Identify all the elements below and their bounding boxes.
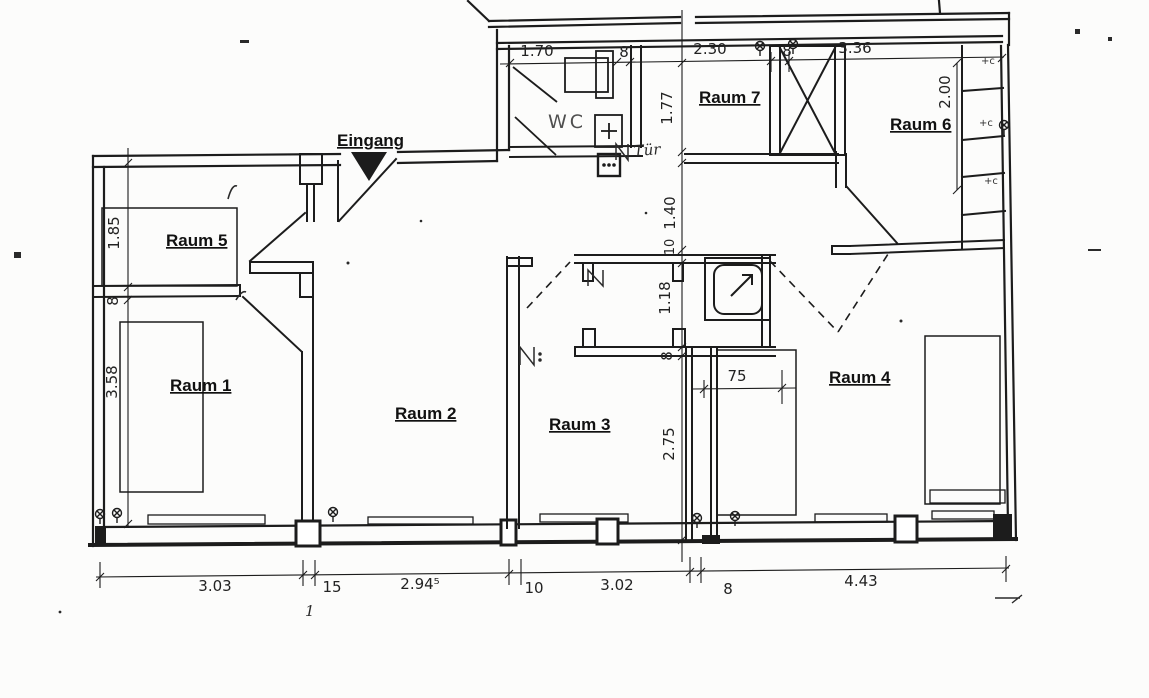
label-eingang: Eingang: [337, 131, 404, 150]
dim-center-0: 1.77: [658, 91, 676, 124]
label-raum3: Raum 3: [549, 415, 610, 434]
dim-bottom-2: 2.94⁵: [400, 575, 439, 593]
dim-center-2: 10: [663, 239, 678, 256]
floor-plan-sheet: Raum 5 Raum 1 Raum 2 Raum 3 Raum 4 Raum …: [0, 0, 1149, 698]
dim-top-2: 2.30: [693, 40, 726, 58]
dim-left-2: 3.58: [103, 365, 121, 398]
label-raum2: Raum 2: [395, 404, 456, 423]
dim-top-1: 8: [619, 43, 629, 61]
dim-bottom-0: 3.03: [198, 577, 231, 595]
dim-left-0: 1.85: [105, 216, 123, 249]
dim-center-5: 2.75: [660, 427, 678, 460]
sheet-mark: 1: [305, 602, 315, 620]
entrance: Eingang: [337, 131, 404, 181]
label-raum5: Raum 5: [166, 231, 227, 250]
label-raum7: Raum 7: [699, 88, 760, 107]
dim-top-0: 1.70: [520, 42, 553, 60]
duct-marks: +c +c +c: [979, 56, 998, 187]
door-note: Tür: [633, 140, 662, 160]
dim-bottom-3: 10: [524, 579, 543, 597]
label-raum4: Raum 4: [829, 368, 891, 387]
dim-left-1: 8: [104, 296, 122, 306]
duct-mark-2: +c: [979, 118, 993, 129]
window-sills: [148, 490, 1005, 524]
dimension-lines: [96, 10, 1010, 588]
shower: [705, 258, 770, 320]
dim-closet: 75: [727, 367, 746, 385]
label-raum1: Raum 1: [170, 376, 231, 395]
wardrobe-raum4: [925, 336, 1000, 504]
dim-bottom-1: 15: [322, 578, 341, 596]
wc-door-line-1: [513, 67, 557, 102]
dim-bottom-5: 8: [723, 580, 733, 598]
floor-plan-drawing: Raum 5 Raum 1 Raum 2 Raum 3 Raum 4 Raum …: [0, 0, 1149, 698]
duct-mark-3: +c: [984, 176, 998, 187]
door-mark-raum3: [520, 347, 534, 365]
exterior-walls: [90, 1, 1016, 546]
duct-mark-1: +c: [981, 56, 995, 67]
wardrobe-raum1: [120, 322, 203, 492]
dim-bottom-4: 3.02: [600, 576, 633, 594]
dim-center-1: 1.40: [661, 196, 679, 229]
dim-right-0: 2.00: [936, 75, 954, 108]
dim-bottom-6: 4.43: [844, 572, 877, 590]
dim-center-4: 8: [658, 351, 676, 361]
label-wc: WC: [548, 111, 586, 133]
dim-top-3: 8: [782, 42, 792, 60]
label-raum6: Raum 6: [890, 115, 951, 134]
dim-top-4: 3.36: [838, 39, 871, 57]
door-mark-bath: [588, 270, 603, 286]
dim-center-3: 1.18: [656, 281, 674, 314]
entrance-arrow: [351, 152, 387, 181]
